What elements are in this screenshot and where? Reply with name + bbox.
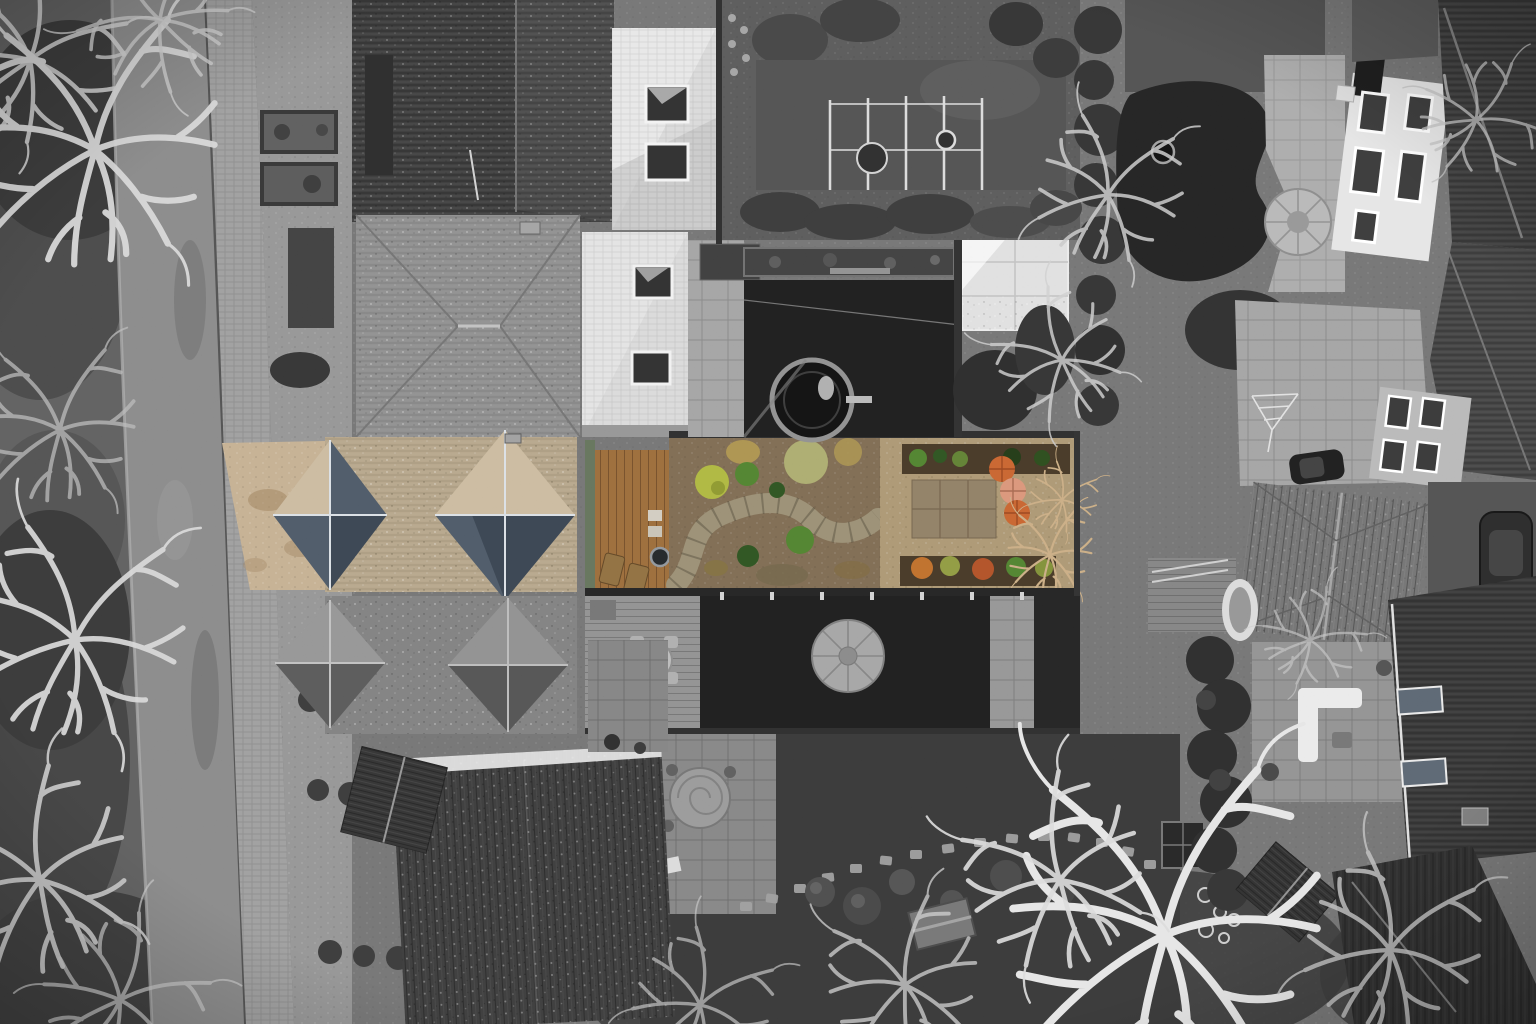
aerial-photo: aerial-drone-photograph bbox=[0, 0, 1536, 1024]
vignette-overlay bbox=[0, 0, 1536, 1024]
aerial-photo-canvas: aerial-drone-photograph bbox=[0, 0, 1536, 1024]
